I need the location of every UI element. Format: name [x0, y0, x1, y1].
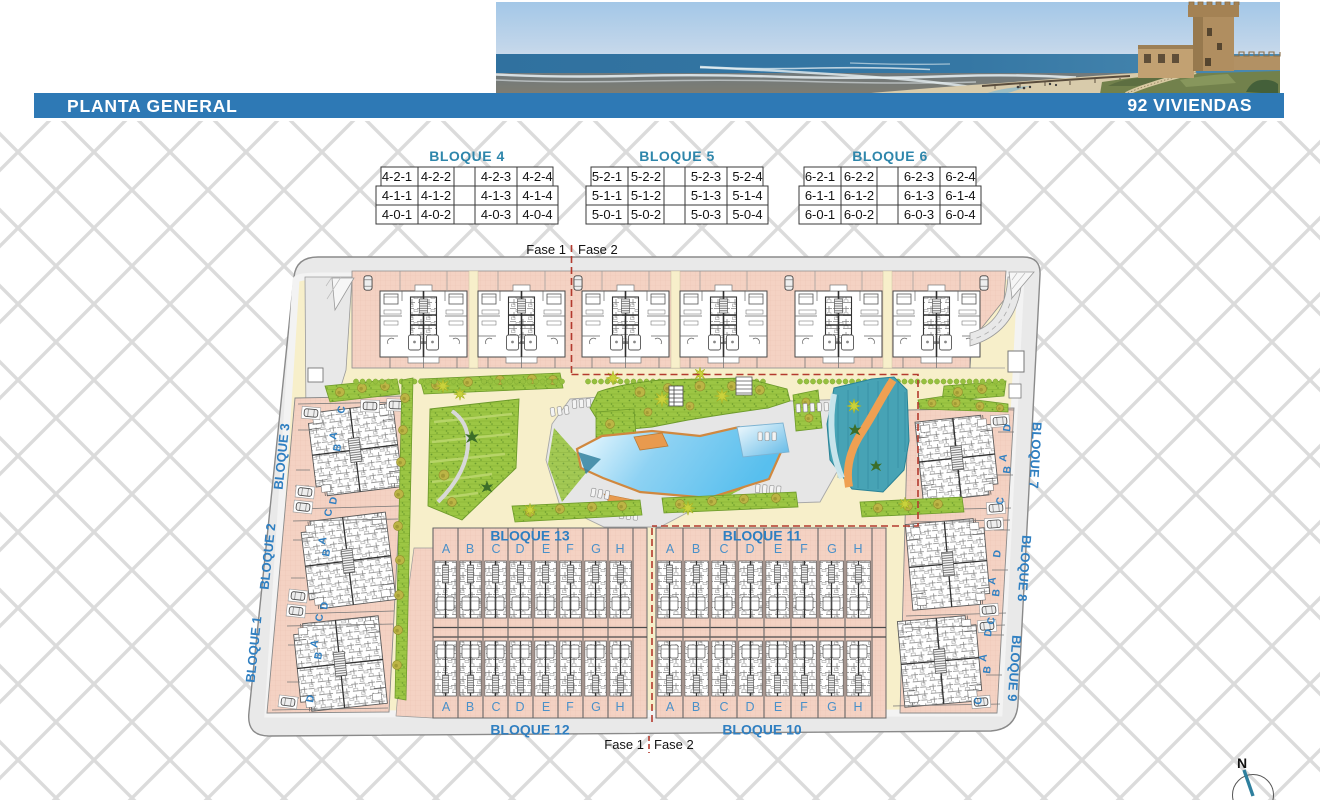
svg-text:6-0-3: 6-0-3: [904, 207, 934, 222]
svg-text:6-0-2: 6-0-2: [844, 207, 874, 222]
svg-text:4-2-2: 4-2-2: [421, 169, 451, 184]
svg-text:5-1-1: 5-1-1: [592, 188, 622, 203]
svg-text:4-1-1: 4-1-1: [382, 188, 412, 203]
svg-text:D: D: [745, 542, 754, 556]
svg-text:A: A: [666, 700, 675, 714]
svg-text:E: E: [542, 542, 550, 556]
svg-text:5-1-3: 5-1-3: [691, 188, 721, 203]
svg-text:5-2-3: 5-2-3: [691, 169, 721, 184]
svg-text:B: B: [692, 542, 700, 556]
svg-text:5-2-4: 5-2-4: [732, 169, 762, 184]
svg-text:5-0-2: 5-0-2: [631, 207, 661, 222]
svg-text:A: A: [666, 542, 675, 556]
svg-text:BLOQUE 12: BLOQUE 12: [490, 722, 570, 738]
svg-text:N: N: [1237, 755, 1247, 771]
svg-text:H: H: [615, 700, 624, 714]
svg-text:5-0-4: 5-0-4: [732, 207, 762, 222]
svg-text:B: B: [466, 542, 474, 556]
svg-text:Fase 2: Fase 2: [654, 737, 694, 752]
svg-text:4-2-3: 4-2-3: [481, 169, 511, 184]
svg-text:H: H: [615, 542, 624, 556]
svg-text:5-2-1: 5-2-1: [592, 169, 622, 184]
svg-text:G: G: [591, 542, 601, 556]
svg-text:6-0-4: 6-0-4: [945, 207, 975, 222]
svg-text:4-2-4: 4-2-4: [522, 169, 552, 184]
svg-text:BLOQUE 13: BLOQUE 13: [490, 528, 570, 544]
svg-text:4-0-4: 4-0-4: [522, 207, 552, 222]
svg-text:6-2-2: 6-2-2: [844, 169, 874, 184]
svg-text:E: E: [774, 700, 782, 714]
svg-text:4-0-2: 4-0-2: [421, 207, 451, 222]
svg-text:5-1-4: 5-1-4: [732, 188, 762, 203]
svg-text:92 VIVIENDAS: 92 VIVIENDAS: [1127, 95, 1252, 115]
svg-text:BLOQUE 5: BLOQUE 5: [639, 148, 715, 164]
svg-text:F: F: [800, 700, 808, 714]
svg-text:B: B: [692, 700, 700, 714]
svg-text:E: E: [774, 542, 782, 556]
svg-text:Fase 2: Fase 2: [578, 242, 618, 257]
svg-text:6-1-1: 6-1-1: [805, 188, 835, 203]
svg-text:6-2-3: 6-2-3: [904, 169, 934, 184]
svg-text:A: A: [442, 542, 451, 556]
svg-text:F: F: [566, 700, 574, 714]
svg-text:6-1-2: 6-1-2: [844, 188, 874, 203]
svg-text:6-1-4: 6-1-4: [945, 188, 975, 203]
svg-text:D: D: [745, 700, 754, 714]
svg-text:D: D: [515, 542, 524, 556]
svg-text:F: F: [566, 542, 574, 556]
svg-text:C: C: [491, 700, 500, 714]
svg-text:C: C: [719, 542, 728, 556]
svg-text:G: G: [827, 542, 837, 556]
svg-text:4-1-2: 4-1-2: [421, 188, 451, 203]
svg-text:B: B: [466, 700, 474, 714]
svg-text:5-1-2: 5-1-2: [631, 188, 661, 203]
svg-text:A: A: [442, 700, 451, 714]
svg-text:6-0-1: 6-0-1: [805, 207, 835, 222]
svg-text:H: H: [853, 700, 862, 714]
svg-text:4-0-1: 4-0-1: [382, 207, 412, 222]
svg-text:F: F: [800, 542, 808, 556]
svg-text:5-2-2: 5-2-2: [631, 169, 661, 184]
svg-text:4-0-3: 4-0-3: [481, 207, 511, 222]
svg-text:BLOQUE 10: BLOQUE 10: [722, 722, 802, 738]
svg-text:4-1-4: 4-1-4: [522, 188, 552, 203]
svg-text:PLANTA GENERAL: PLANTA GENERAL: [67, 96, 238, 116]
svg-text:6-1-3: 6-1-3: [904, 188, 934, 203]
svg-text:4-1-3: 4-1-3: [481, 188, 511, 203]
svg-text:D: D: [515, 700, 524, 714]
svg-text:5-0-3: 5-0-3: [691, 207, 721, 222]
svg-text:G: G: [827, 700, 837, 714]
svg-text:5-0-1: 5-0-1: [592, 207, 622, 222]
svg-text:6-2-4: 6-2-4: [945, 169, 975, 184]
svg-text:BLOQUE 11: BLOQUE 11: [723, 528, 802, 544]
svg-text:E: E: [542, 700, 550, 714]
svg-text:C: C: [719, 700, 728, 714]
svg-text:Fase 1: Fase 1: [526, 242, 566, 257]
svg-text:G: G: [591, 700, 601, 714]
svg-text:BLOQUE 6: BLOQUE 6: [852, 148, 928, 164]
svg-text:4-2-1: 4-2-1: [382, 169, 412, 184]
svg-text:H: H: [853, 542, 862, 556]
svg-text:6-2-1: 6-2-1: [805, 169, 835, 184]
svg-text:Fase 1: Fase 1: [604, 737, 644, 752]
svg-text:C: C: [491, 542, 500, 556]
svg-text:BLOQUE 4: BLOQUE 4: [429, 148, 505, 164]
